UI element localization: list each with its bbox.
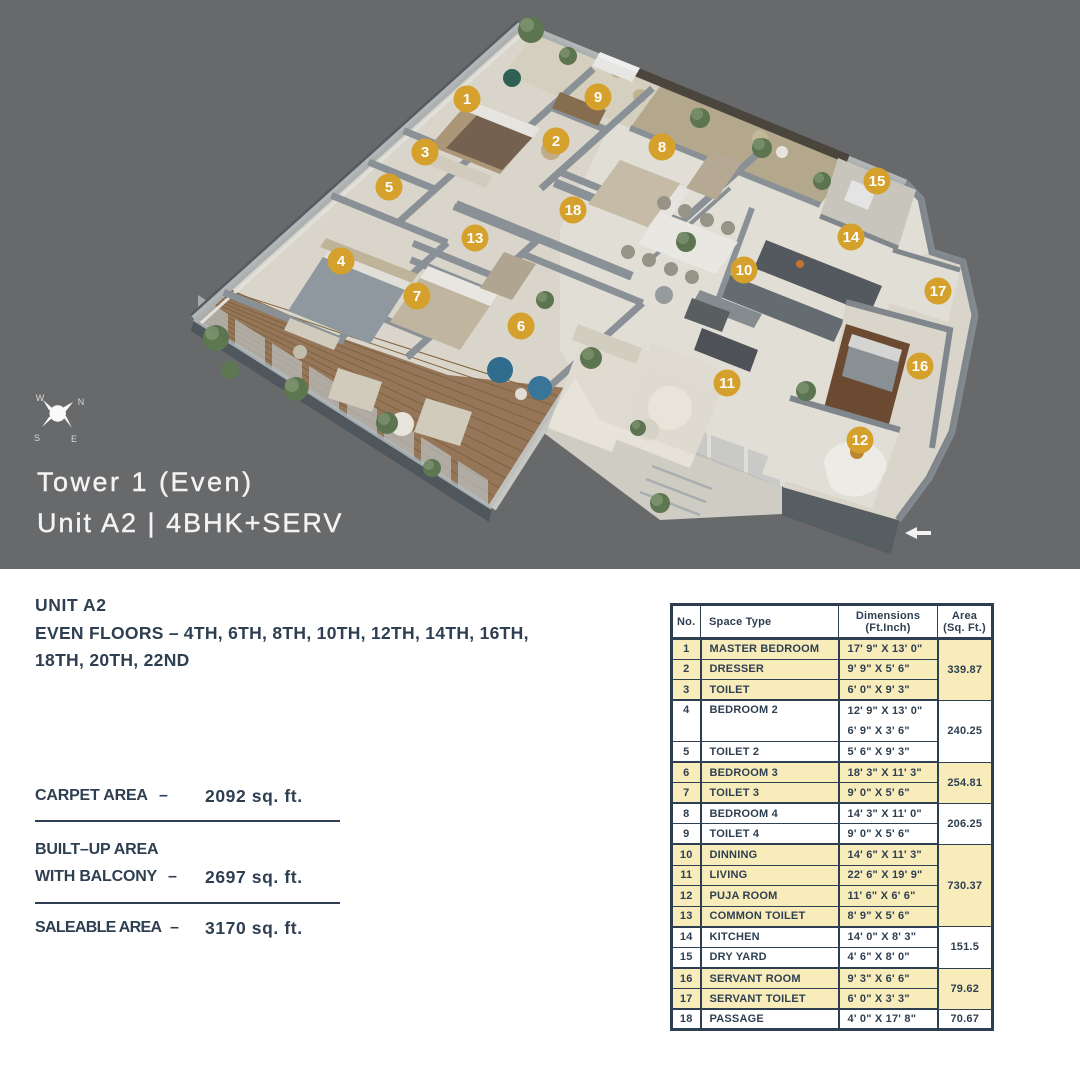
svg-text:8: 8	[658, 139, 666, 156]
svg-text:18: 18	[565, 202, 582, 219]
svg-text:S: S	[34, 433, 40, 443]
svg-text:3: 3	[421, 144, 429, 161]
svg-text:9: 9	[594, 89, 602, 106]
svg-text:17: 17	[930, 283, 947, 300]
svg-text:7: 7	[413, 288, 421, 305]
svg-text:4: 4	[337, 253, 346, 270]
svg-text:16: 16	[912, 358, 929, 375]
svg-text:15: 15	[869, 173, 886, 190]
svg-text:W: W	[36, 393, 45, 403]
svg-text:11: 11	[719, 375, 735, 392]
svg-text:12: 12	[852, 432, 869, 449]
svg-text:2: 2	[552, 133, 560, 150]
svg-text:N: N	[78, 397, 85, 407]
svg-text:5: 5	[385, 179, 393, 196]
svg-text:1: 1	[463, 91, 471, 108]
svg-text:6: 6	[517, 318, 525, 335]
svg-text:E: E	[71, 434, 77, 444]
svg-text:10: 10	[736, 262, 753, 279]
svg-text:14: 14	[843, 229, 860, 246]
svg-text:13: 13	[467, 230, 484, 247]
